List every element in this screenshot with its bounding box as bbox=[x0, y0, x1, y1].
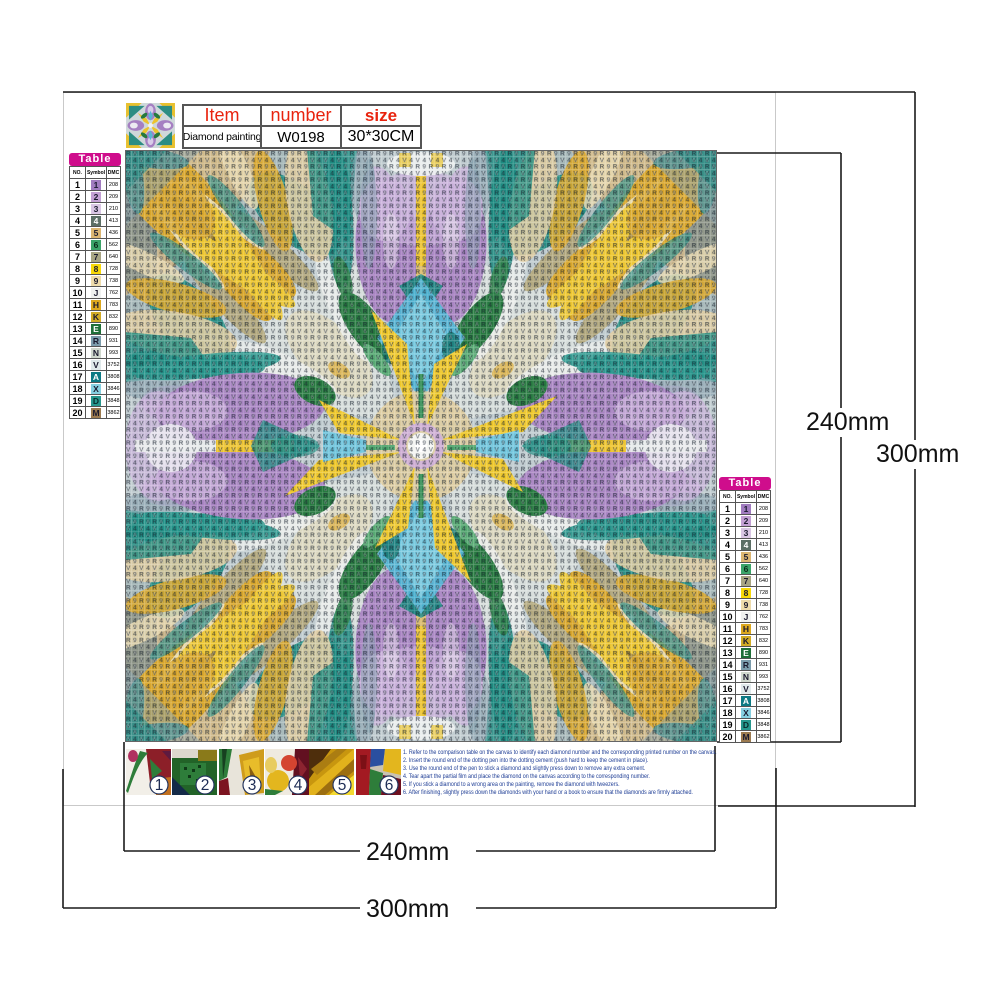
svg-text:1: 1 bbox=[155, 777, 164, 794]
svg-text:6: 6 bbox=[385, 777, 394, 794]
svg-text:3: 3 bbox=[248, 777, 257, 794]
svg-text:2: 2 bbox=[201, 777, 210, 794]
svg-text:4: 4 bbox=[294, 777, 303, 794]
svg-text:5: 5 bbox=[338, 777, 347, 794]
